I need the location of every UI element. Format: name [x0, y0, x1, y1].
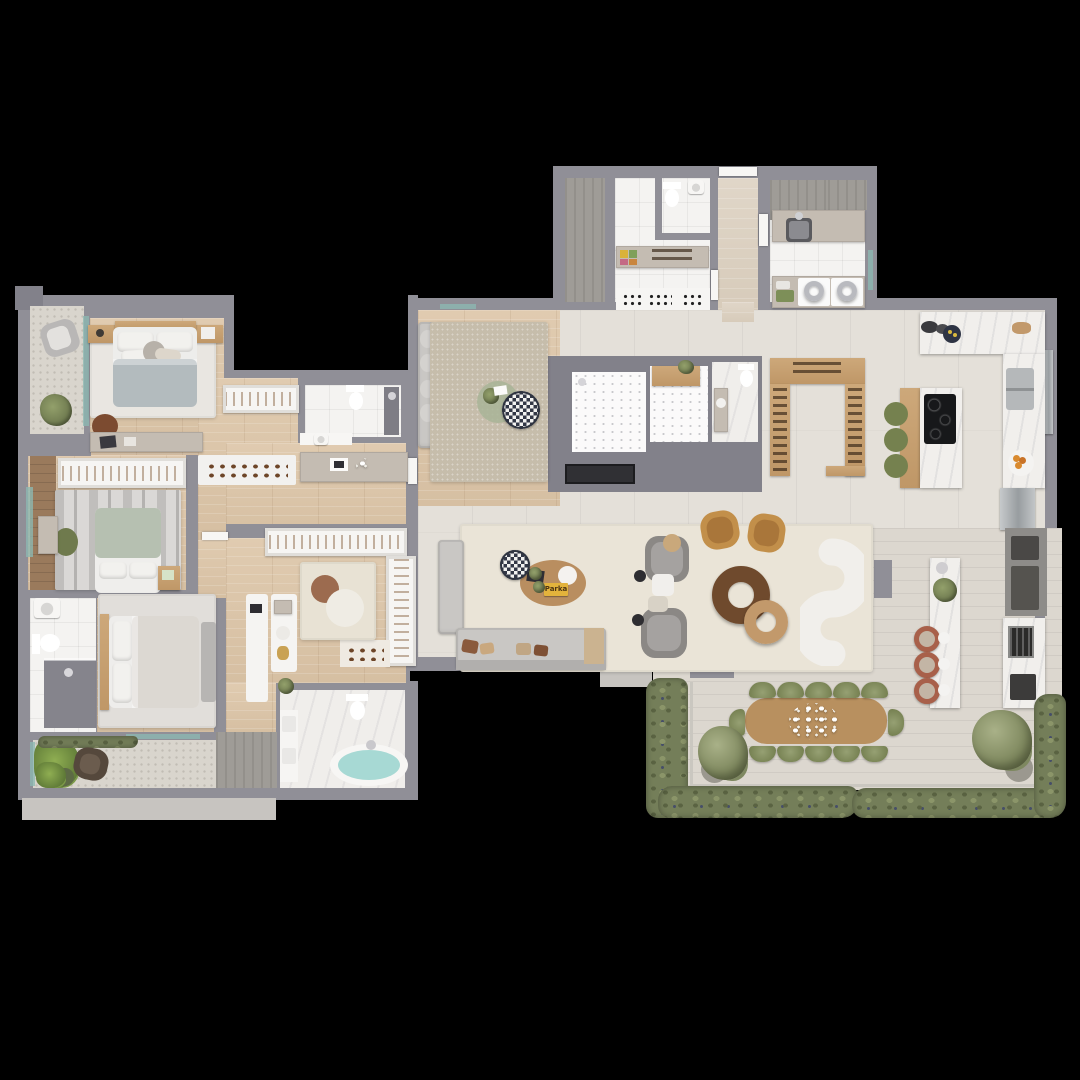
den-table-checker	[502, 391, 540, 429]
vanity1-deco	[250, 604, 262, 613]
hedge-bottom-a	[658, 786, 858, 818]
nightstand-deco	[201, 327, 215, 339]
masterbed-duvet	[132, 616, 199, 708]
bath2-shower-glass	[44, 658, 96, 661]
master-door	[202, 532, 228, 540]
midbath-shower-head	[578, 378, 586, 386]
pantry-floor	[615, 178, 710, 302]
vanity2-pouf	[276, 626, 290, 640]
masterbed-duvet-fold	[132, 616, 138, 708]
bar-stool-2	[914, 652, 940, 678]
pantry-item-orange	[629, 259, 637, 265]
pantry-item-yellow	[620, 250, 628, 258]
corridor-threshold	[722, 302, 754, 322]
bath2-toilet-tank	[32, 634, 40, 654]
laundry-tray-white	[776, 281, 790, 289]
side-table-beige	[648, 596, 668, 612]
terrace-tree-1	[698, 726, 748, 780]
island-cooktop	[924, 394, 956, 444]
bedroom2-cabinet	[38, 516, 58, 554]
sofa-pillow-tan-2	[516, 643, 531, 655]
vanity2-gold-deco	[277, 646, 289, 660]
sectional-chaise	[438, 540, 464, 634]
closet-shoes	[346, 646, 384, 661]
sofa-pillow-rust	[461, 639, 479, 655]
sofa-pillow-brown	[533, 644, 548, 656]
bath2-shower-head	[64, 668, 73, 677]
console-flower	[356, 458, 370, 472]
bar-stool-3	[914, 678, 940, 704]
bar-plate-2	[938, 658, 950, 670]
powder-toilet-bowl	[740, 370, 753, 387]
bedroom1-bottom-wall	[25, 448, 91, 456]
powder-sink	[716, 398, 726, 408]
kitchen-steel-ledge	[1044, 350, 1053, 434]
terrace-pillar	[874, 560, 892, 598]
curved-sofa	[800, 536, 864, 666]
wine-bottles-left	[773, 388, 787, 472]
sectional-wood-end	[584, 628, 604, 664]
laundry-tray-green	[776, 290, 794, 302]
balcony2-fern-2	[36, 762, 66, 788]
masterbath-toilet-tank	[346, 694, 368, 701]
ac-ledge	[600, 671, 652, 687]
dining-chair-n5	[861, 682, 888, 698]
den-deco-card	[493, 385, 507, 396]
armchair-1-tray	[663, 534, 681, 552]
laundry-door	[759, 214, 768, 246]
coffee-table-tan-ring	[744, 600, 788, 644]
masterbath-basin-1	[282, 716, 296, 732]
bedroom2-wardrobe	[58, 458, 186, 488]
hallbath-shower-head	[388, 392, 396, 400]
side-table-checker	[500, 550, 530, 580]
grill-cabinet-inset-1	[1011, 536, 1039, 560]
balcony1-plant	[40, 394, 72, 426]
wc-toilet-bowl	[665, 189, 679, 207]
wine-rack-knives	[793, 362, 841, 378]
island-stool-2	[884, 428, 908, 452]
midbath-shower-glass	[572, 372, 575, 452]
side-table-white	[652, 574, 674, 596]
bed1-duvet-fold	[113, 359, 197, 365]
vanity2-boxes	[274, 600, 292, 614]
laundry-window	[868, 250, 873, 290]
oval-plant-2	[533, 581, 545, 593]
bar-plate-3	[938, 684, 950, 696]
masterbed-pillow-b	[112, 663, 132, 703]
masterbed-headboard	[100, 614, 109, 710]
bar-deco	[936, 562, 948, 574]
side-table-black-1	[634, 570, 646, 582]
balcony-apron	[22, 798, 276, 820]
bar-plant	[933, 578, 957, 602]
media-wall-tv	[565, 464, 635, 484]
island-stool-3	[884, 454, 908, 478]
wc-divider-h	[655, 233, 710, 240]
counter-lemon-2	[953, 333, 957, 337]
dining-chair-n1	[749, 682, 776, 698]
corridor-floor	[718, 178, 758, 312]
pantry-item-pink	[620, 259, 628, 265]
book-parka: Parka	[544, 583, 568, 596]
shaft-floor	[216, 732, 277, 788]
hall-wardrobe	[223, 385, 299, 413]
closet-shelf-right	[386, 556, 416, 666]
counter-lemon-1	[948, 330, 952, 334]
laundry-faucet	[795, 212, 803, 220]
side-table-black-2	[632, 614, 644, 626]
counter-basket	[1012, 322, 1031, 334]
island-stool-1	[884, 402, 908, 426]
bar-plate-1	[938, 632, 950, 644]
hedge-right	[1034, 694, 1066, 818]
left-wall-window	[26, 487, 33, 557]
sofa-pillow-tan-1	[479, 642, 494, 655]
masterbath-basin-2	[282, 748, 296, 764]
masterbath-toilet-bowl	[350, 701, 365, 720]
pantry-bottles	[652, 249, 692, 265]
wc-toilet-tank	[663, 182, 681, 189]
passage-floor	[198, 540, 226, 598]
closet-plant	[278, 678, 294, 694]
wine-bottles-right	[848, 388, 862, 472]
bath2-toilet-bowl	[40, 634, 60, 652]
armchair-2-cushion	[647, 615, 681, 651]
masterbed-pillow-a	[112, 621, 132, 661]
hallbath-sink	[314, 433, 328, 445]
hall-console	[300, 452, 408, 482]
floor-plan: Parka	[0, 0, 1080, 1080]
pantry-item-green	[629, 250, 637, 258]
dining-chair-n3	[805, 682, 832, 698]
desk-deco	[124, 437, 136, 446]
laundry-sink-basin	[789, 221, 809, 239]
bathtub-water	[338, 750, 400, 780]
grill-grate	[1008, 626, 1034, 658]
console-tray-item	[334, 461, 344, 468]
desk-laptop	[99, 435, 116, 449]
powder-vanity	[714, 388, 728, 432]
shoe-rack-shoes	[206, 462, 288, 478]
terrace-tree-2	[972, 710, 1032, 770]
bed2-blanket	[95, 508, 161, 558]
grill-cabinet-inset-2	[1011, 566, 1039, 610]
wc-sink	[688, 180, 704, 194]
service-entry-door	[719, 167, 757, 176]
grill-side-burner	[1010, 674, 1036, 700]
washer-2-door	[837, 281, 857, 301]
den-hall-door	[408, 458, 417, 484]
lamp-left	[96, 329, 104, 337]
pantry-knobs-1	[622, 293, 642, 306]
wine-rack-foot	[826, 466, 865, 476]
fridge	[1000, 488, 1035, 530]
masterbed-bench	[201, 622, 216, 702]
washer-1-door	[804, 281, 824, 301]
hallbath-toilet-bowl	[349, 392, 363, 410]
wc-divider-v	[655, 178, 662, 240]
bathtub-tap	[366, 740, 376, 750]
oval-plant-1	[529, 567, 542, 580]
bar-stool-1	[914, 626, 940, 652]
closet-shelf-top	[265, 528, 407, 556]
pantry-knobs-3	[682, 293, 704, 306]
mudroom-plant	[678, 360, 694, 374]
kitchen-sink-divider	[1006, 388, 1034, 391]
storage-floor	[565, 178, 605, 302]
laundry-concrete-b	[828, 180, 867, 210]
closet-rug-cream-circle	[326, 589, 364, 627]
den-window	[440, 304, 476, 309]
bath2-sink	[34, 598, 60, 618]
dining-centerpiece	[789, 703, 839, 740]
hedge-bottom-b	[852, 788, 1062, 818]
nightstand2-deco	[162, 570, 174, 580]
notch-top	[234, 286, 408, 370]
bed1-duvet	[113, 359, 197, 407]
dining-chair-n4	[833, 682, 860, 698]
bed2-pillow-b	[129, 562, 157, 579]
counter-tray	[943, 325, 961, 343]
fruit-3	[1015, 462, 1022, 469]
hallbath-toilet-tank	[346, 385, 364, 392]
dining-chair-n2	[777, 682, 804, 698]
bed2-pillow-a	[99, 562, 127, 579]
parapet-left	[690, 682, 693, 784]
pantry-door	[711, 270, 718, 300]
pantry-knobs-2	[648, 293, 672, 306]
